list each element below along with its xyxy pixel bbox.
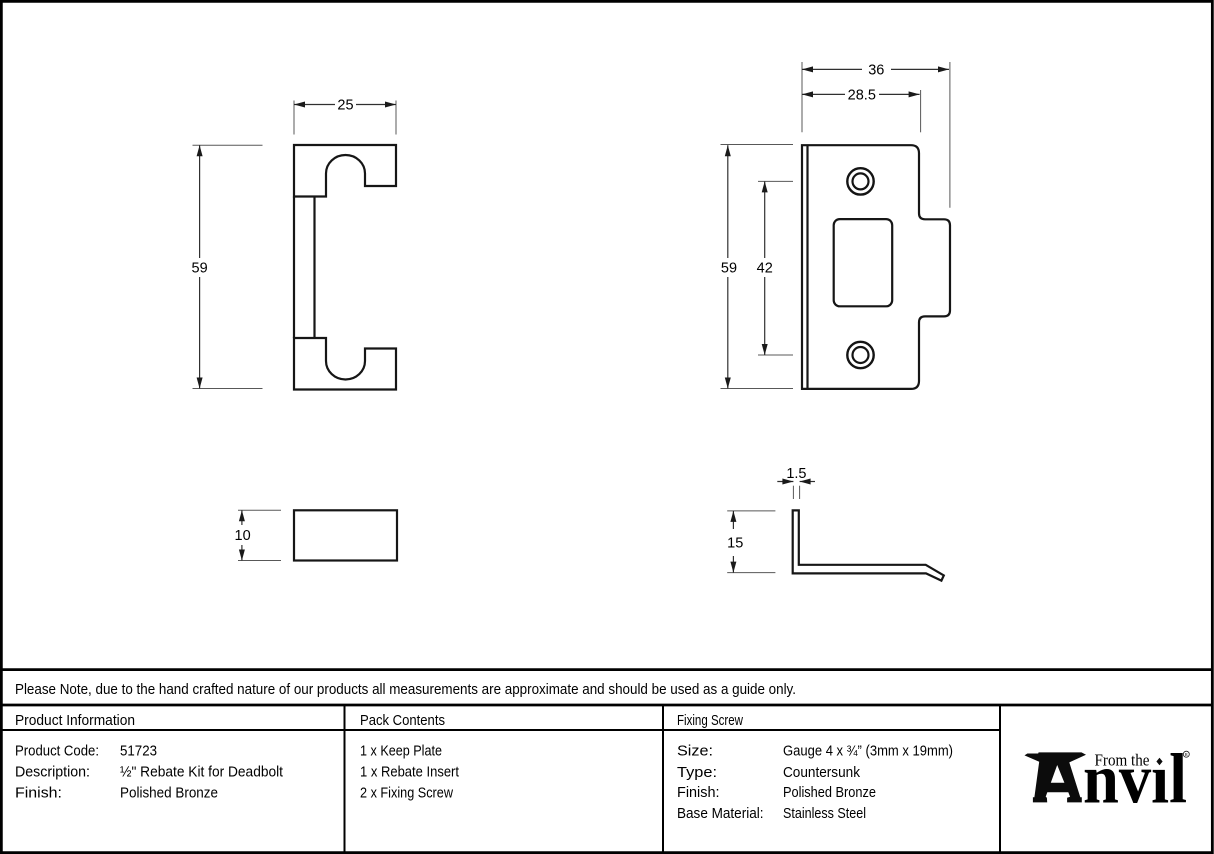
- svg-text:Base Material:: Base Material:: [677, 805, 764, 822]
- svg-text:1 x Rebate Insert: 1 x Rebate Insert: [360, 764, 460, 781]
- svg-text:From the: From the: [1095, 750, 1150, 769]
- svg-text:Finish:: Finish:: [15, 785, 62, 802]
- svg-text:Please Note, due to the hand c: Please Note, due to the hand crafted nat…: [15, 681, 796, 698]
- svg-text:Polished Bronze: Polished Bronze: [783, 784, 876, 801]
- svg-text:Finish:: Finish:: [677, 784, 720, 801]
- svg-text:Fixing Screw: Fixing Screw: [677, 712, 743, 729]
- svg-text:59: 59: [721, 261, 737, 277]
- svg-text:Type:: Type:: [677, 764, 717, 781]
- svg-text:½" Rebate Kit for Deadbolt: ½" Rebate Kit for Deadbolt: [120, 764, 284, 781]
- svg-text:Size:: Size:: [677, 743, 713, 760]
- svg-text:59: 59: [192, 261, 208, 277]
- svg-text:Description:: Description:: [15, 764, 90, 781]
- svg-text:25: 25: [337, 98, 353, 114]
- svg-text:Countersunk: Countersunk: [783, 764, 860, 781]
- svg-text:Pack Contents: Pack Contents: [360, 712, 445, 729]
- svg-text:1 x Keep Plate: 1 x Keep Plate: [360, 743, 442, 760]
- svg-text:Polished Bronze: Polished Bronze: [120, 785, 218, 802]
- svg-text:10: 10: [235, 528, 251, 544]
- svg-text:2 x Fixing Screw: 2 x Fixing Screw: [360, 785, 453, 802]
- svg-text:1.5: 1.5: [786, 466, 806, 482]
- svg-text:Product Information: Product Information: [15, 712, 135, 729]
- svg-text:15: 15: [727, 536, 743, 552]
- svg-text:Gauge 4 x ¾” (3mm x 19mm): Gauge 4 x ¾” (3mm x 19mm): [783, 743, 953, 760]
- svg-text:28.5: 28.5: [848, 88, 876, 104]
- svg-text:42: 42: [757, 261, 773, 277]
- svg-text:Stainless Steel: Stainless Steel: [783, 805, 866, 822]
- svg-text:51723: 51723: [120, 743, 157, 760]
- svg-text:Product Code:: Product Code:: [15, 743, 99, 760]
- svg-text:36: 36: [868, 63, 884, 79]
